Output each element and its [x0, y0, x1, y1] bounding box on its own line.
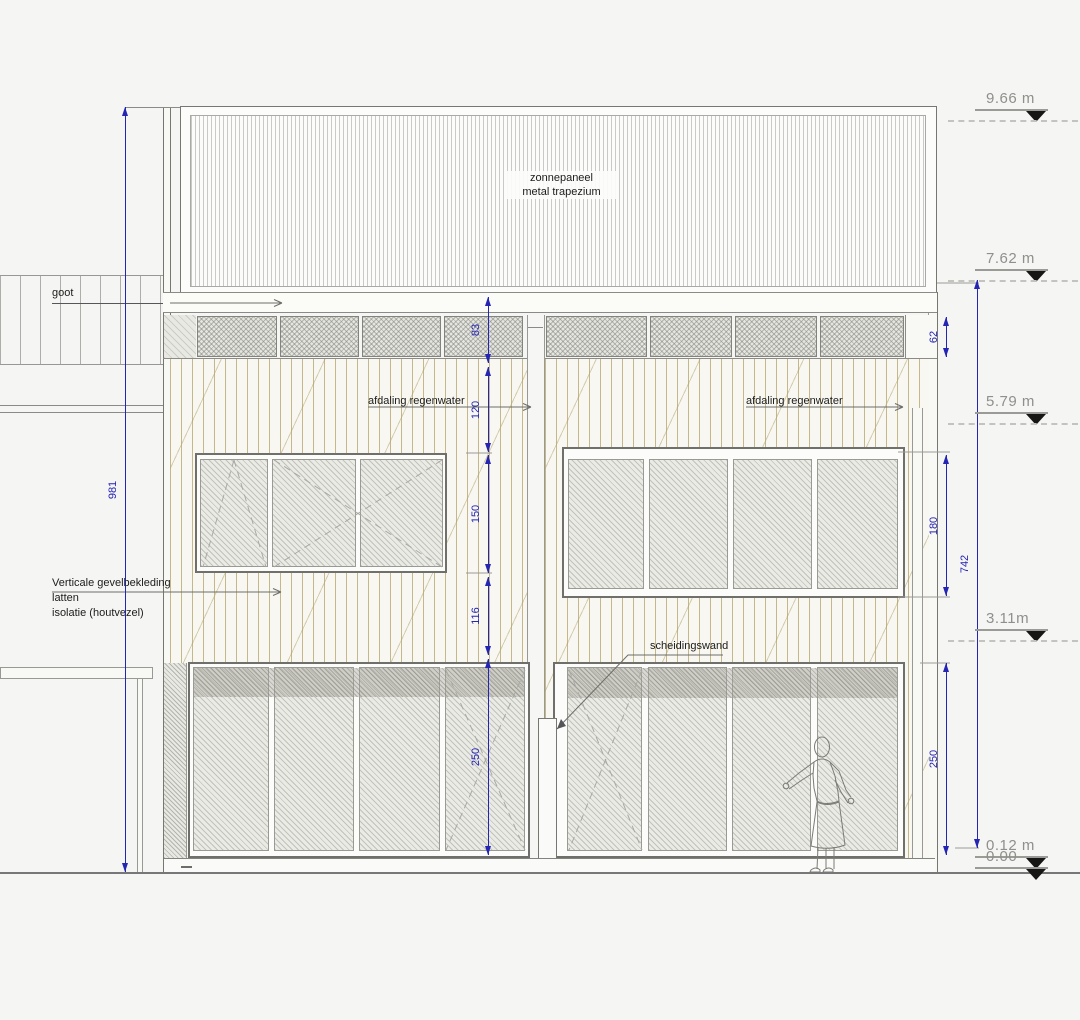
level-dash: [948, 120, 1078, 122]
roof-label-line1: zonnepaneel: [530, 172, 593, 184]
dimension-value: 83: [470, 324, 482, 336]
rain-label-right: afdaling regenwater: [746, 394, 843, 408]
gutter-band: [163, 292, 937, 313]
sill-band: [164, 858, 935, 872]
level-dash: [948, 280, 1078, 282]
clerestory-pane: [735, 316, 817, 357]
sill-dash: [181, 866, 192, 868]
dimension-segment: [974, 839, 980, 848]
dimension-segment: [485, 297, 491, 306]
party-joint-tick: [528, 327, 543, 328]
neighbor-roof-band: [0, 275, 163, 365]
rain-label-left: afdaling regenwater: [368, 394, 465, 408]
dimension-segment: [943, 455, 949, 464]
dimension-value: 250: [928, 750, 940, 768]
dimension-segment: [488, 659, 489, 855]
level-label: 0.00: [986, 848, 1017, 865]
level-label: 3.11m: [986, 610, 1029, 627]
dimension-segment: [977, 280, 978, 848]
level-label: 5.79 m: [986, 393, 1035, 410]
dimension-segment: [488, 367, 489, 452]
gutter-label: goot: [52, 286, 73, 300]
gutter-label-underline: [52, 303, 163, 304]
dimension-segment: [488, 577, 489, 655]
dimension-segment: [943, 317, 949, 326]
window-pane: [360, 459, 443, 567]
top-edge-connector: [125, 107, 180, 108]
dimension-segment: [943, 348, 949, 357]
dimension-segment: [122, 107, 128, 116]
cladding-note-line2: latten: [52, 592, 79, 604]
window-pane: [733, 459, 812, 589]
cladding-note-line3: isolatie (houtvezel): [52, 607, 144, 619]
right-wall: [928, 292, 938, 872]
cladding-note: Verticale gevelbekleding latten isolatie…: [52, 576, 171, 621]
dimension-segment: [485, 564, 491, 573]
clerestory-pane: [444, 316, 523, 357]
elevation-drawing: zonnepaneel metal trapezium: [0, 0, 1080, 1020]
window-pane: [272, 459, 356, 567]
dimension-segment: [485, 455, 491, 464]
dimension-value: 62: [928, 331, 940, 343]
partition-label: scheidingswand: [650, 639, 728, 653]
roof-label-line2: metal trapezium: [522, 186, 600, 198]
dimension-segment: [943, 846, 949, 855]
clerestory-pane: [362, 316, 441, 357]
dimension-value: 981: [107, 480, 119, 498]
party-wall: [538, 718, 557, 872]
ground-left-wall-strip: [164, 663, 187, 858]
dimension-value: 250: [470, 748, 482, 766]
level-label: 7.62 m: [986, 250, 1035, 267]
level-dash: [948, 423, 1078, 425]
dimension-segment: [488, 455, 489, 573]
downpipe-right: [912, 408, 923, 866]
neighbor-wall: [137, 679, 143, 872]
ground-line: [0, 872, 1080, 874]
dimension-segment: [122, 863, 128, 872]
dimension-value: 150: [470, 505, 482, 523]
neighbor-line-upper: [0, 405, 163, 406]
dimension-segment: [943, 587, 949, 596]
dimension-segment: [125, 107, 126, 872]
window-pane: [200, 459, 268, 567]
dimension-segment: [946, 455, 947, 596]
dimension-value: 116: [470, 607, 482, 625]
dimension-segment: [485, 659, 491, 668]
dimension-segment: [943, 663, 949, 672]
clerestory-pane: [280, 316, 359, 357]
dimension-segment: [485, 367, 491, 376]
dimension-value: 742: [959, 555, 971, 573]
clerestory-pane: [650, 316, 732, 357]
window-pane: [817, 459, 898, 589]
dimension-value: 120: [470, 400, 482, 418]
clerestory-left-strip: [164, 315, 196, 358]
glazing-top-shadow-left: [194, 668, 524, 697]
cladding-note-line1: Verticale gevelbekleding: [52, 577, 171, 589]
window-pane: [649, 459, 728, 589]
neighbor-line-lower: [0, 412, 163, 413]
clerestory-pane: [820, 316, 904, 357]
dimension-segment: [485, 846, 491, 855]
dimension-value: 180: [928, 516, 940, 534]
dimension-segment: [485, 354, 491, 363]
level-triangle: [1026, 869, 1046, 880]
glazing-top-shadow-right: [568, 668, 897, 698]
dimension-segment: [485, 646, 491, 655]
dimension-segment: [946, 663, 947, 855]
clerestory-pane: [546, 316, 647, 357]
roof-panel-stripes: [190, 115, 926, 287]
window-pane: [568, 459, 644, 589]
clerestory-pane: [197, 316, 277, 357]
level-dash: [948, 640, 1078, 642]
neighbor-canopy-bar: [0, 667, 153, 679]
level-label: 9.66 m: [986, 90, 1035, 107]
dimension-segment: [485, 577, 491, 586]
dimension-segment: [485, 443, 491, 452]
roof-label: zonnepaneel metal trapezium: [504, 171, 619, 199]
